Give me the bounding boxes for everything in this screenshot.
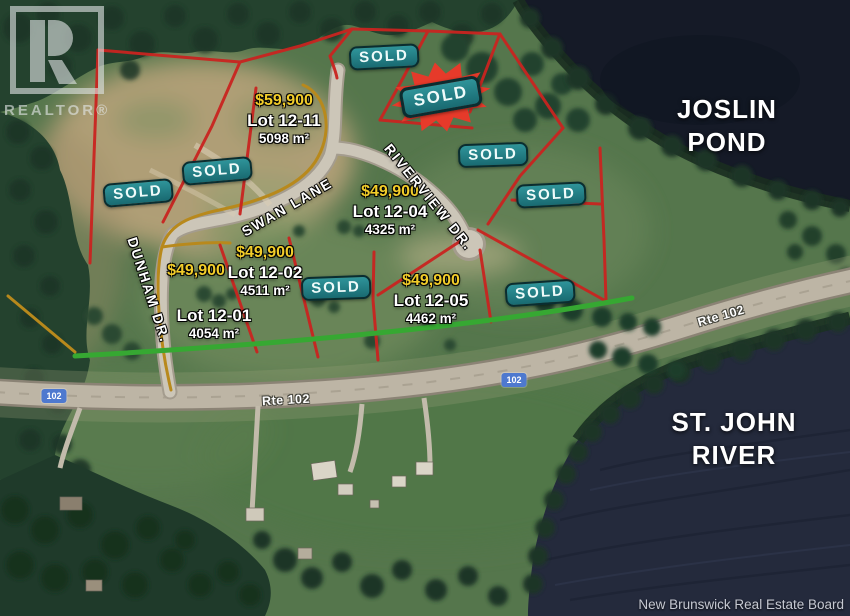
sold-badge-3: SOLD [458, 142, 528, 168]
lot-12-01-price: $49,900 [167, 262, 225, 281]
lot-12-01-price-label: $49,900 [167, 262, 225, 281]
lot-12-01-area: 4054 m² [177, 326, 252, 342]
river-line1: ST. JOHN [671, 406, 796, 439]
lot-12-05-name: Lot 12-05 [394, 291, 469, 311]
lot-12-04-name: Lot 12-04 [353, 202, 428, 222]
aerial-lot-map: REALTOR® SOLD SOLD SOLD SOLD SOLD SOLD S… [0, 0, 850, 616]
lot-12-02-area: 4511 m² [228, 283, 303, 299]
lot-12-11-name: Lot 12-11 [247, 111, 321, 131]
realtor-logo: REALTOR® [4, 6, 110, 119]
route-shield-102-left: 102 [41, 389, 66, 403]
joslin-line2: POND [677, 126, 777, 159]
lot-12-02-name: Lot 12-02 [228, 263, 303, 283]
lot-12-01-label: Lot 12-01 4054 m² [177, 306, 252, 342]
lot-12-05-area: 4462 m² [394, 311, 469, 327]
lot-12-01-name: Lot 12-01 [177, 306, 252, 326]
lot-12-11-price: $59,900 [247, 92, 321, 111]
lot-12-04-area: 4325 m² [353, 222, 428, 238]
attribution-text: New Brunswick Real Estate Board [638, 597, 844, 612]
lot-12-11-area: 5098 m² [247, 131, 321, 147]
lot-12-05-label: $49,900 Lot 12-05 4462 m² [394, 272, 469, 327]
joslin-line1: JOSLIN [677, 93, 777, 126]
sold-badge-4: SOLD [516, 181, 587, 209]
lot-12-02-price: $49,900 [228, 244, 303, 263]
river-line2: RIVER [671, 439, 796, 472]
water-label-joslin-pond: JOSLIN POND [677, 93, 777, 158]
realtor-r-icon [9, 6, 105, 96]
sold-badge-8: SOLD [504, 279, 575, 308]
sold-badge-7: SOLD [301, 275, 371, 301]
street-label-rte102-left: Rte 102 [262, 392, 311, 408]
lot-12-02-label: $49,900 Lot 12-02 4511 m² [228, 244, 303, 299]
lot-12-05-price: $49,900 [394, 272, 469, 291]
route-shield-102-center: 102 [501, 373, 526, 387]
realtor-wordmark: REALTOR® [4, 102, 110, 119]
water-label-st-john-river: ST. JOHN RIVER [671, 406, 796, 471]
lot-12-11-label: $59,900 Lot 12-11 5098 m² [247, 92, 321, 147]
sold-badge-1: SOLD [349, 43, 420, 71]
